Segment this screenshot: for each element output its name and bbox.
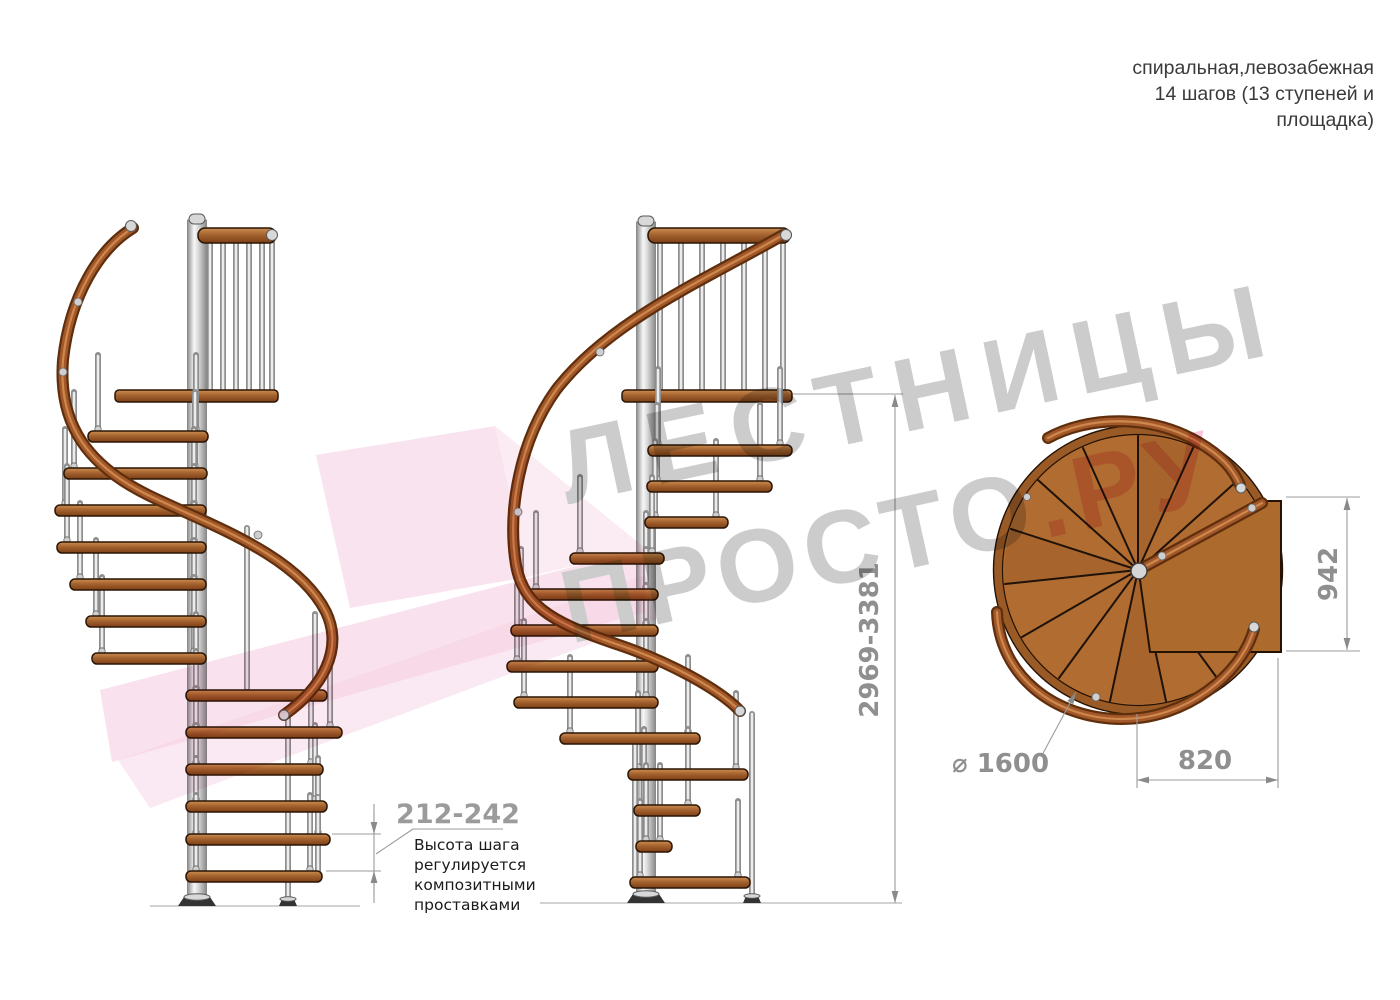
dimension-total-height: 2969-3381: [793, 394, 903, 903]
technical-drawing: 2969-3381 212-242 Высота шага регулирует…: [0, 0, 1400, 1000]
dimension-step-height: 212-242 Высота шага регулируется компози…: [326, 799, 536, 914]
title-line-2: 14 шагов (13 ступеней и: [1132, 81, 1374, 107]
title-line-3: площадка): [1132, 107, 1374, 133]
diameter-value: ⌀ 1600: [952, 749, 1049, 779]
title-line-1: спиральная,левозабежная: [1132, 55, 1374, 81]
top-plan-view: [994, 421, 1283, 719]
side-elevation-side: [507, 216, 902, 903]
title-block: спиральная,левозабежная 14 шагов (13 сту…: [1132, 55, 1374, 133]
svg-text:проставками: проставками: [414, 896, 520, 914]
step-height-value: 212-242: [396, 799, 520, 830]
entry-width-value: 820: [1178, 746, 1232, 776]
step-height-note: Высота шага регулируется композитными пр…: [414, 836, 536, 914]
side-elevation-front: [55, 214, 360, 906]
dimension-landing-depth: 942: [1286, 497, 1360, 651]
total-height-value: 2969-3381: [855, 562, 885, 718]
svg-text:Высота шага: Высота шага: [414, 836, 520, 854]
landing-depth-value: 942: [1314, 547, 1344, 601]
center-pole-hub: [1131, 563, 1147, 579]
svg-text:регулируется: регулируется: [414, 856, 526, 874]
svg-text:композитными: композитными: [414, 876, 536, 894]
drawing-canvas: 2969-3381 212-242 Высота шага регулирует…: [0, 0, 1400, 1000]
